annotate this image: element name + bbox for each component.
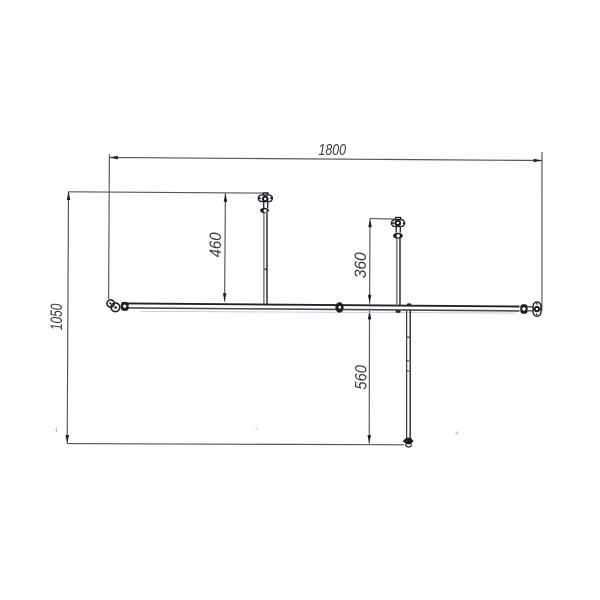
svg-text:460: 460 [206,232,225,257]
svg-text:360: 360 [351,252,370,278]
svg-text:1800: 1800 [319,142,347,159]
svg-text:560: 560 [351,365,370,390]
svg-text:1050: 1050 [47,303,66,330]
